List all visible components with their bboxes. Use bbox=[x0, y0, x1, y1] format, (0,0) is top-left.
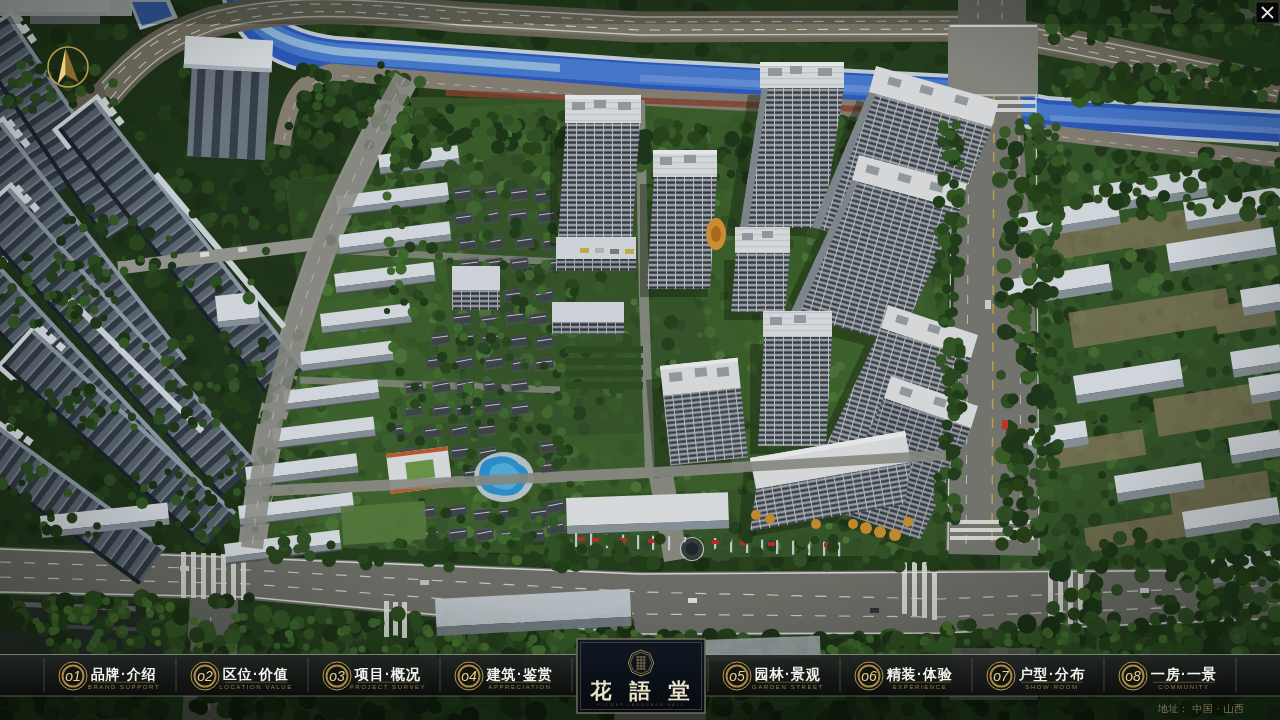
svg-text:堂: 堂 bbox=[668, 679, 690, 702]
svg-text:BRAND SUPPORT: BRAND SUPPORT bbox=[88, 684, 160, 690]
svg-text:品牌·介绍: 品牌·介绍 bbox=[91, 666, 158, 682]
svg-text:o1: o1 bbox=[65, 668, 81, 684]
svg-text:語: 語 bbox=[629, 679, 651, 702]
svg-text:EXPERIENCE: EXPERIENCE bbox=[893, 684, 948, 690]
svg-text:项目·概况: 项目·概况 bbox=[354, 666, 422, 682]
svg-text:户型·分布: 户型·分布 bbox=[1018, 666, 1086, 682]
svg-text:地址： 中国 · 山西: 地址： 中国 · 山西 bbox=[1157, 703, 1244, 714]
svg-text:FLOWER LANGUAGE HALL: FLOWER LANGUAGE HALL bbox=[597, 703, 685, 707]
svg-text:花: 花 bbox=[590, 679, 613, 702]
svg-text:o7: o7 bbox=[993, 668, 1010, 684]
svg-text:LOCATION VALUE: LOCATION VALUE bbox=[219, 684, 293, 690]
svg-text:o3: o3 bbox=[329, 668, 345, 684]
svg-text:o8: o8 bbox=[1125, 668, 1141, 684]
svg-text:APPRECIATION: APPRECIATION bbox=[488, 684, 551, 690]
svg-text:SHOW ROOM: SHOW ROOM bbox=[1025, 684, 1078, 690]
svg-text:建筑·鉴赏: 建筑·鉴赏 bbox=[486, 666, 554, 682]
svg-text:精装·体验: 精装·体验 bbox=[886, 666, 954, 682]
svg-text:o5: o5 bbox=[729, 668, 745, 684]
svg-text:COMMUNITY: COMMUNITY bbox=[1158, 684, 1209, 690]
svg-text:一房·一景: 一房·一景 bbox=[1151, 666, 1218, 682]
svg-text:园林·景观: 园林·景观 bbox=[755, 666, 822, 682]
svg-text:o4: o4 bbox=[461, 668, 477, 684]
svg-text:o6: o6 bbox=[861, 668, 877, 684]
svg-text:区位·价值: 区位·价值 bbox=[223, 666, 290, 682]
svg-text:GARDEN STREET: GARDEN STREET bbox=[752, 684, 824, 690]
svg-text:PROJECT SURVEY: PROJECT SURVEY bbox=[350, 684, 427, 690]
svg-text:o2: o2 bbox=[197, 668, 213, 684]
